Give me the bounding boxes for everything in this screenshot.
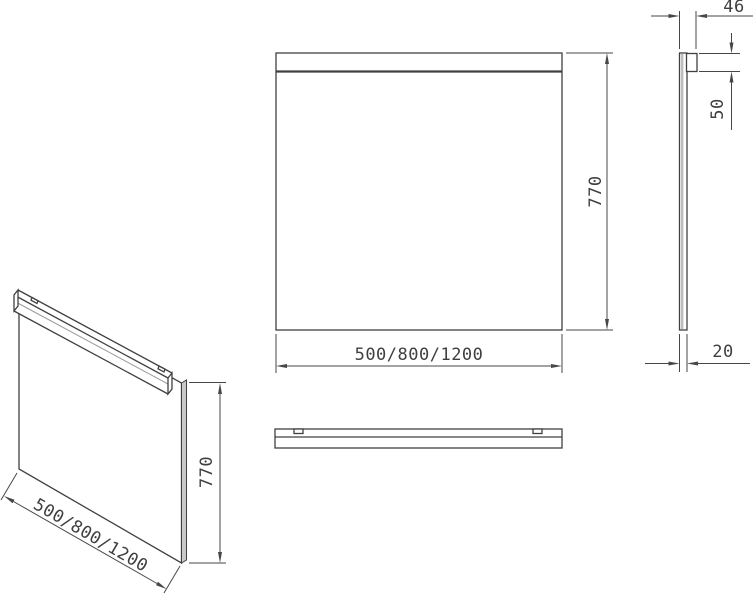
arrowhead-icon: [687, 362, 698, 366]
arrowhead-icon: [730, 43, 734, 54]
isometric-view: 770 500/800/1200: [1, 290, 226, 593]
top-clip-left: [294, 429, 303, 434]
arrowhead-icon: [669, 362, 680, 366]
front-height-label: 770: [586, 175, 606, 207]
top-panel-outline: [275, 429, 562, 448]
side-depth-dimension: 46: [651, 0, 753, 49]
top-clip-right: [533, 429, 542, 434]
arrowhead-icon: [605, 53, 609, 64]
front-width-label: 500/800/1200: [355, 345, 484, 365]
arrowhead-icon: [276, 364, 287, 368]
arrowhead-icon: [4, 496, 15, 503]
front-height-dimension: 770: [566, 53, 613, 330]
arrowhead-icon: [218, 552, 222, 563]
side-thickness-dimension: 20: [645, 334, 750, 372]
arrowhead-icon: [696, 14, 707, 18]
side-thickness-label: 20: [712, 342, 733, 362]
iso-panel-edge: [182, 380, 187, 563]
front-panel-outline: [276, 53, 562, 330]
side-panel-glass-shade: [681, 54, 683, 329]
arrowhead-icon: [156, 582, 167, 589]
iso-height-label: 770: [197, 456, 217, 488]
arrowhead-icon: [551, 364, 562, 368]
side-depth-label: 46: [723, 0, 744, 17]
front-view: 770 500/800/1200: [276, 53, 613, 373]
front-width-dimension: 500/800/1200: [276, 334, 562, 373]
iso-panel-face: [19, 293, 182, 563]
arrowhead-icon: [218, 383, 222, 394]
side-rail-block: [687, 54, 698, 72]
arrowhead-icon: [605, 319, 609, 330]
drawing-canvas: 770 500/800/1200 46: [0, 0, 753, 600]
side-rail-height-dimension: 50: [699, 33, 740, 130]
iso-height-dimension: 770: [189, 383, 226, 564]
arrowhead-icon: [730, 72, 734, 83]
arrowhead-icon: [669, 14, 680, 18]
top-view: [275, 429, 562, 448]
side-rail-height-label: 50: [708, 98, 728, 119]
technical-drawing: 770 500/800/1200 46: [0, 0, 753, 600]
side-view: 46 50 20: [645, 0, 753, 372]
